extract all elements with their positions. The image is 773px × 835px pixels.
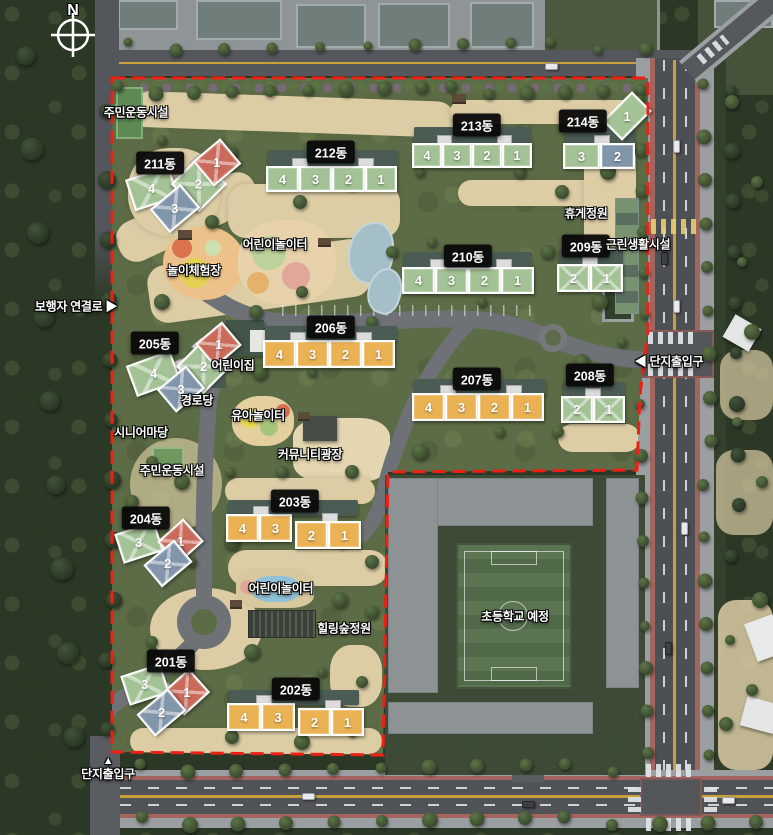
facility-label: 경로당: [181, 392, 213, 409]
label-layer: 211동212동213동214동210동209동206동205동207동208동…: [0, 0, 773, 835]
facility-label: 초등학교 예정: [481, 608, 548, 625]
building-label-203동: 203동: [271, 490, 319, 513]
entrance-arrow-icon: ▲: [103, 756, 114, 768]
facility-label: 힐링숲정원: [317, 620, 371, 637]
building-label-210동: 210동: [444, 245, 492, 268]
building-label-206동: 206동: [307, 316, 355, 339]
building-label-211동: 211동: [136, 152, 184, 175]
building-label-207동: 207동: [453, 368, 501, 391]
facility-label: 휴게정원: [565, 205, 608, 222]
facility-label: 어린이집: [212, 357, 255, 374]
compass-icon: [50, 12, 96, 58]
facility-label: 놀이체험장: [167, 262, 221, 279]
building-label-204동: 204동: [122, 507, 170, 530]
building-label-214동: 214동: [559, 110, 607, 133]
facility-label: 유아놀이터: [231, 407, 285, 424]
building-label-202동: 202동: [272, 678, 320, 701]
building-label-205동: 205동: [131, 332, 179, 355]
facility-label: 주민운동시설: [140, 462, 204, 479]
facility-label: 어린이놀이터: [249, 580, 313, 597]
building-label-208동: 208동: [566, 364, 614, 387]
building-label-201동: 201동: [147, 650, 195, 673]
entrance-label: 보행자 연결로 ▶: [35, 298, 117, 315]
entrance-text: 단지출입구: [81, 767, 135, 780]
entrance-label: ◀ 단지출입구: [635, 353, 703, 370]
building-label-213동: 213동: [453, 114, 501, 137]
building-label-209동: 209동: [562, 235, 610, 258]
building-label-212동: 212동: [307, 141, 355, 164]
facility-label: 커뮤니티광장: [278, 446, 342, 463]
entrance-label: ▲단지출입구: [81, 756, 135, 780]
facility-label: 시니어마당: [114, 424, 168, 441]
apartment-site-plan: 4231432143213214321214321421343212131243…: [0, 0, 773, 835]
facility-label: 주민운동시설: [104, 104, 168, 121]
facility-label: 어린이놀이터: [243, 236, 307, 253]
facility-label: 근린생활시설: [606, 236, 670, 253]
